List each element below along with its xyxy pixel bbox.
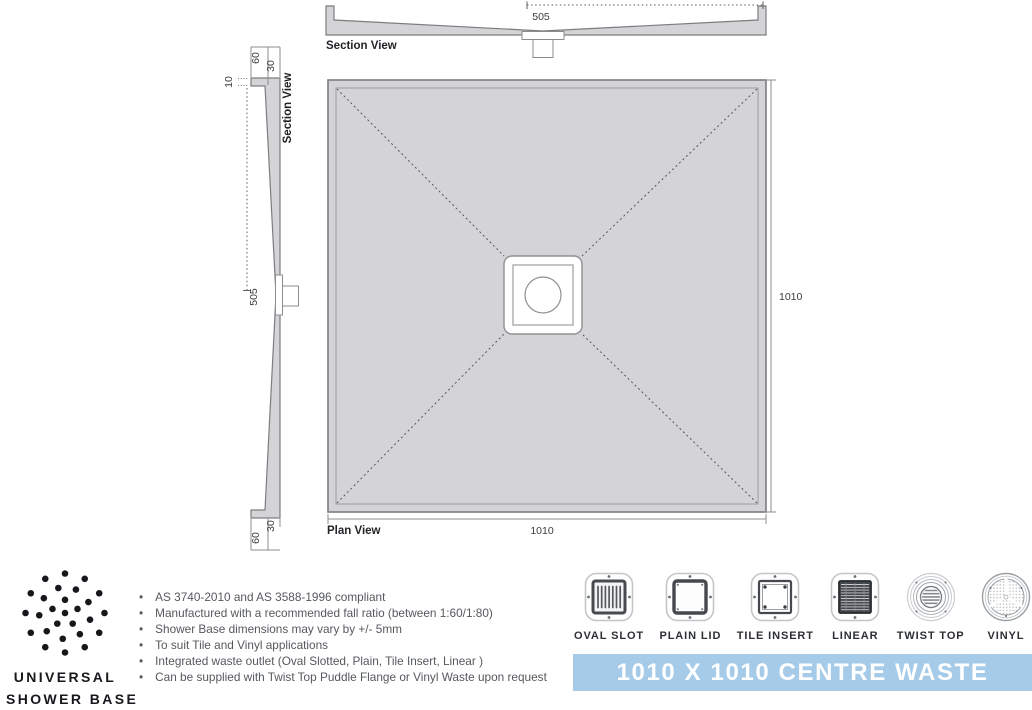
feature-item: •Integrated waste outlet (Oval Slotted, … — [139, 653, 594, 669]
left-dim-60-top-label: 60 — [250, 52, 262, 64]
left-dim-505-label: 505 — [248, 288, 260, 306]
feature-item: •AS 3740-2010 and AS 3588-1996 compliant — [139, 589, 594, 605]
feature-text: Manufactured with a recommended fall rat… — [155, 605, 493, 621]
bullet-icon: • — [139, 637, 143, 653]
oval-slot-icon — [583, 571, 635, 623]
brand-name-line2: SHOWER BASE — [6, 689, 124, 709]
left-waste-flange — [276, 275, 283, 315]
twist-top-icon — [905, 571, 957, 623]
waste-option-plain-lid: PLAIN LID — [659, 571, 721, 642]
left-section-view: 60 30 10 505 30 60 Sectio — [223, 47, 299, 550]
tile-insert-icon — [749, 571, 801, 623]
feature-item: •To suit Tile and Vinyl applications — [139, 637, 594, 653]
left-dimension-505 — [243, 88, 251, 291]
brand-dots-icon — [18, 566, 112, 660]
tile-insert-label: TILE INSERT — [737, 630, 814, 642]
top-section-view-label: Section View — [326, 40, 397, 52]
technical-drawing: 505 Section View 60 30 10 — [0, 0, 1032, 560]
feature-item: •Shower Base dimensions may vary by +/- … — [139, 621, 594, 637]
plan-view-label: Plan View — [327, 525, 381, 537]
twist-top-label: TWIST TOP — [897, 630, 965, 642]
waste-option-oval-slot: OVAL SLOT — [574, 571, 644, 642]
plan-view: 1010 1010 Plan View — [327, 80, 803, 537]
feature-text: Shower Base dimensions may vary by +/- 5… — [155, 621, 402, 637]
bullet-icon: • — [139, 605, 143, 621]
top-waste-flange — [522, 32, 564, 40]
vinyl-icon — [980, 571, 1032, 623]
waste-option-tile-insert: TILE INSERT — [737, 571, 814, 642]
plain-lid-label: PLAIN LID — [659, 630, 721, 642]
plan-dimension-height — [766, 80, 776, 512]
top-section-view: 505 Section View — [326, 2, 766, 58]
bullet-icon: • — [139, 621, 143, 637]
top-waste-pipe — [533, 40, 553, 58]
bullet-icon: • — [139, 653, 143, 669]
waste-option-twist-top: TWIST TOP — [897, 571, 965, 642]
plan-dim-width-label: 1010 — [530, 525, 554, 537]
left-dim-30-top-label: 30 — [265, 60, 277, 72]
left-section-view-label: Section View — [282, 73, 294, 144]
top-dim-505-label: 505 — [532, 11, 550, 23]
left-dim-10-label: 10 — [223, 76, 235, 88]
linear-icon — [829, 571, 881, 623]
product-title-banner: 1010 X 1010 CENTRE WASTE — [573, 654, 1032, 691]
feature-item: •Can be supplied with Twist Top Puddle F… — [139, 669, 594, 685]
bullet-icon: • — [139, 589, 143, 605]
waste-options-row: OVAL SLOT PLAIN LID T — [574, 571, 1032, 642]
top-dimension-505 — [527, 2, 763, 10]
feature-text: To suit Tile and Vinyl applications — [155, 637, 328, 653]
brand-logo: UNIVERSAL SHOWER BASE — [6, 566, 124, 710]
left-dim-30-bottom-label: 30 — [265, 520, 277, 532]
plan-centre-waste — [504, 256, 582, 334]
oval-slot-label: OVAL SLOT — [574, 630, 644, 642]
bullet-icon: • — [139, 669, 143, 685]
feature-text: Can be supplied with Twist Top Puddle Fl… — [155, 669, 547, 685]
plain-lid-icon — [664, 571, 716, 623]
waste-option-vinyl: VINYL — [980, 571, 1032, 642]
brand-name-line1: UNIVERSAL — [6, 667, 124, 687]
left-dim-10 — [238, 79, 249, 86]
vinyl-label: VINYL — [988, 630, 1025, 642]
feature-text: AS 3740-2010 and AS 3588-1996 compliant — [155, 589, 385, 605]
left-waste-pipe — [283, 286, 299, 306]
product-title: 1010 X 1010 CENTRE WASTE — [617, 659, 989, 687]
feature-text: Integrated waste outlet (Oval Slotted, P… — [155, 653, 483, 669]
plan-dim-height-label: 1010 — [779, 291, 803, 303]
left-dim-60-bottom-label: 60 — [250, 532, 262, 544]
waste-option-linear: LINEAR — [829, 571, 881, 642]
feature-list: •AS 3740-2010 and AS 3588-1996 compliant… — [139, 589, 594, 686]
feature-item: •Manufactured with a recommended fall ra… — [139, 605, 594, 621]
spec-sheet: 505 Section View 60 30 10 — [0, 0, 1032, 700]
linear-label: LINEAR — [832, 630, 878, 642]
plan-dimension-width — [328, 514, 766, 524]
